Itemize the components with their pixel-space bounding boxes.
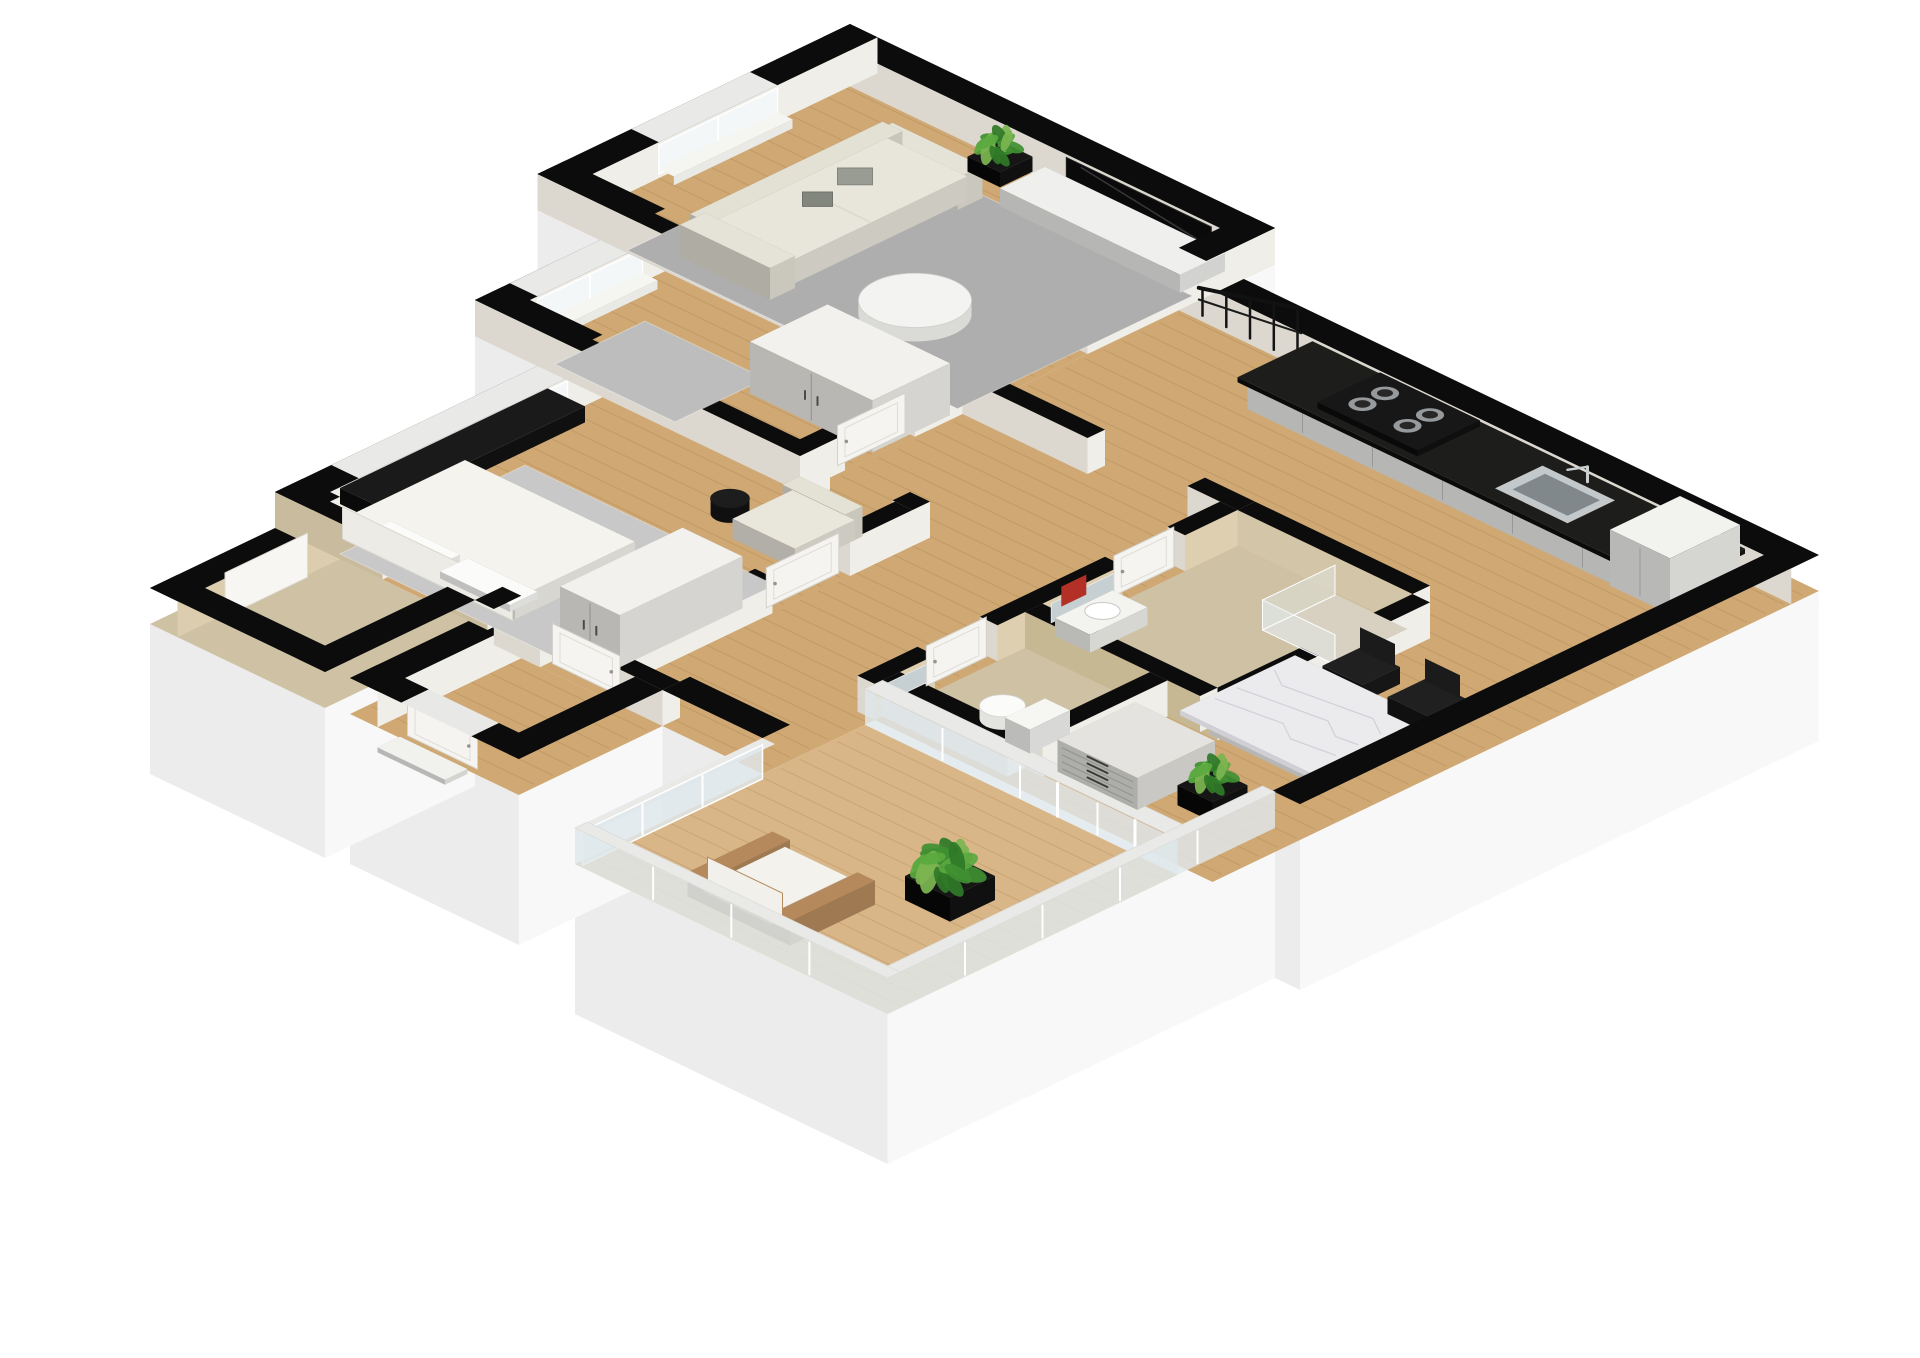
burner-2b [1355, 400, 1371, 408]
floor-plan-svg: 3D Floor Plan [0, 0, 1920, 1358]
burner-3b [1422, 411, 1438, 419]
sofa-pillow-1 [838, 168, 873, 185]
bathroom-sink [1085, 603, 1120, 620]
floor-plan-3d-render: 3D Floor Plan [0, 0, 1920, 1358]
burner-4b [1400, 422, 1416, 430]
sofa-pillow-2 [803, 192, 833, 206]
burner-1b [1377, 389, 1393, 397]
